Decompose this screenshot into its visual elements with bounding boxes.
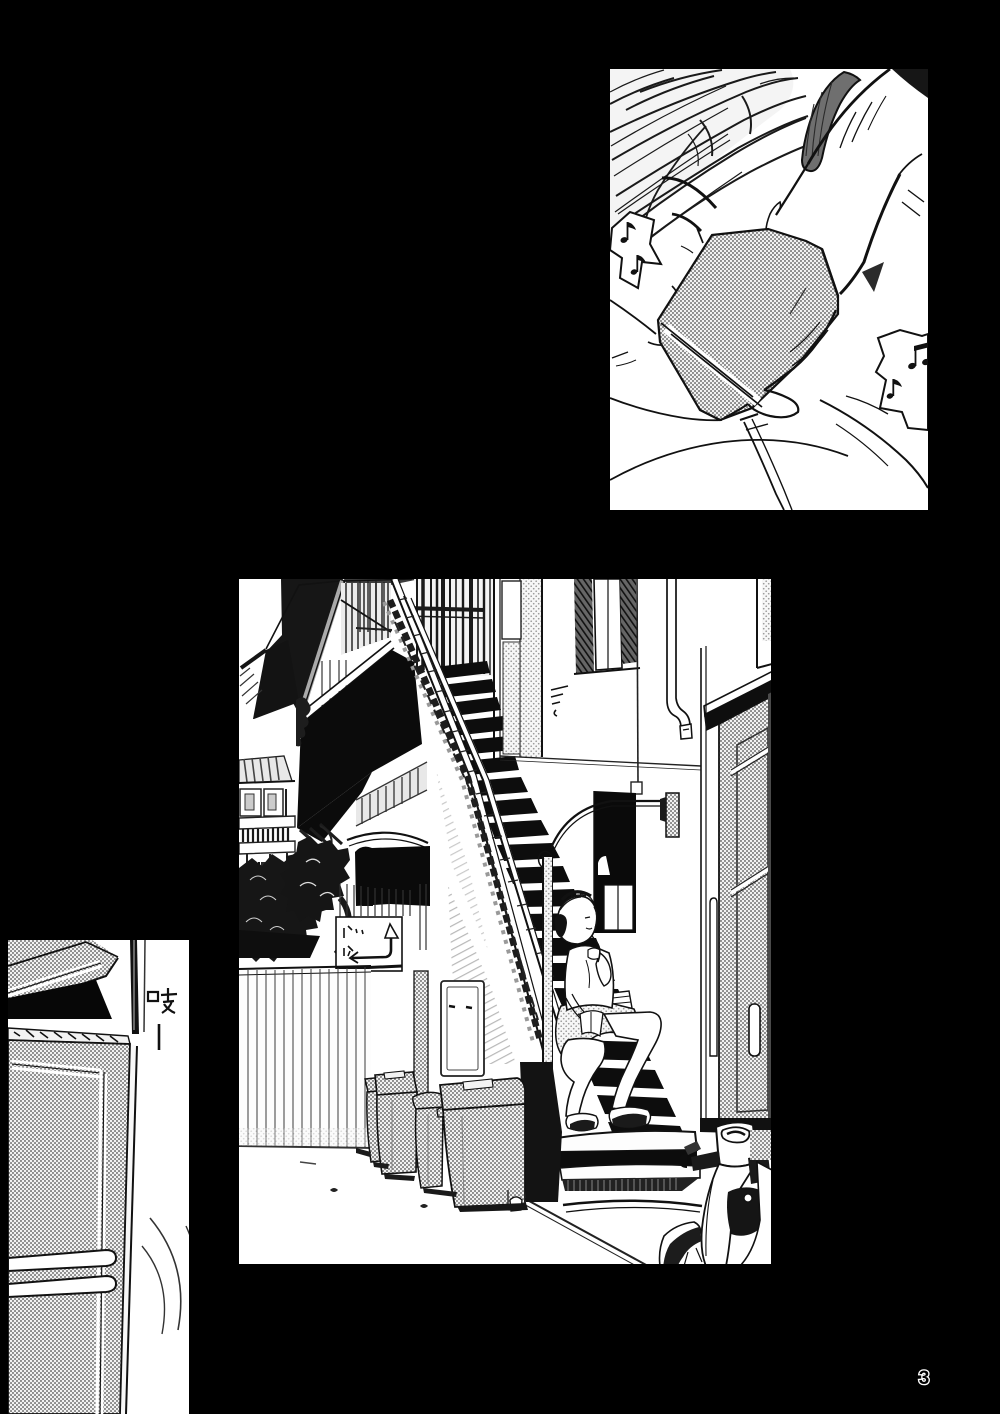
svg-text:3: 3	[919, 1368, 930, 1389]
